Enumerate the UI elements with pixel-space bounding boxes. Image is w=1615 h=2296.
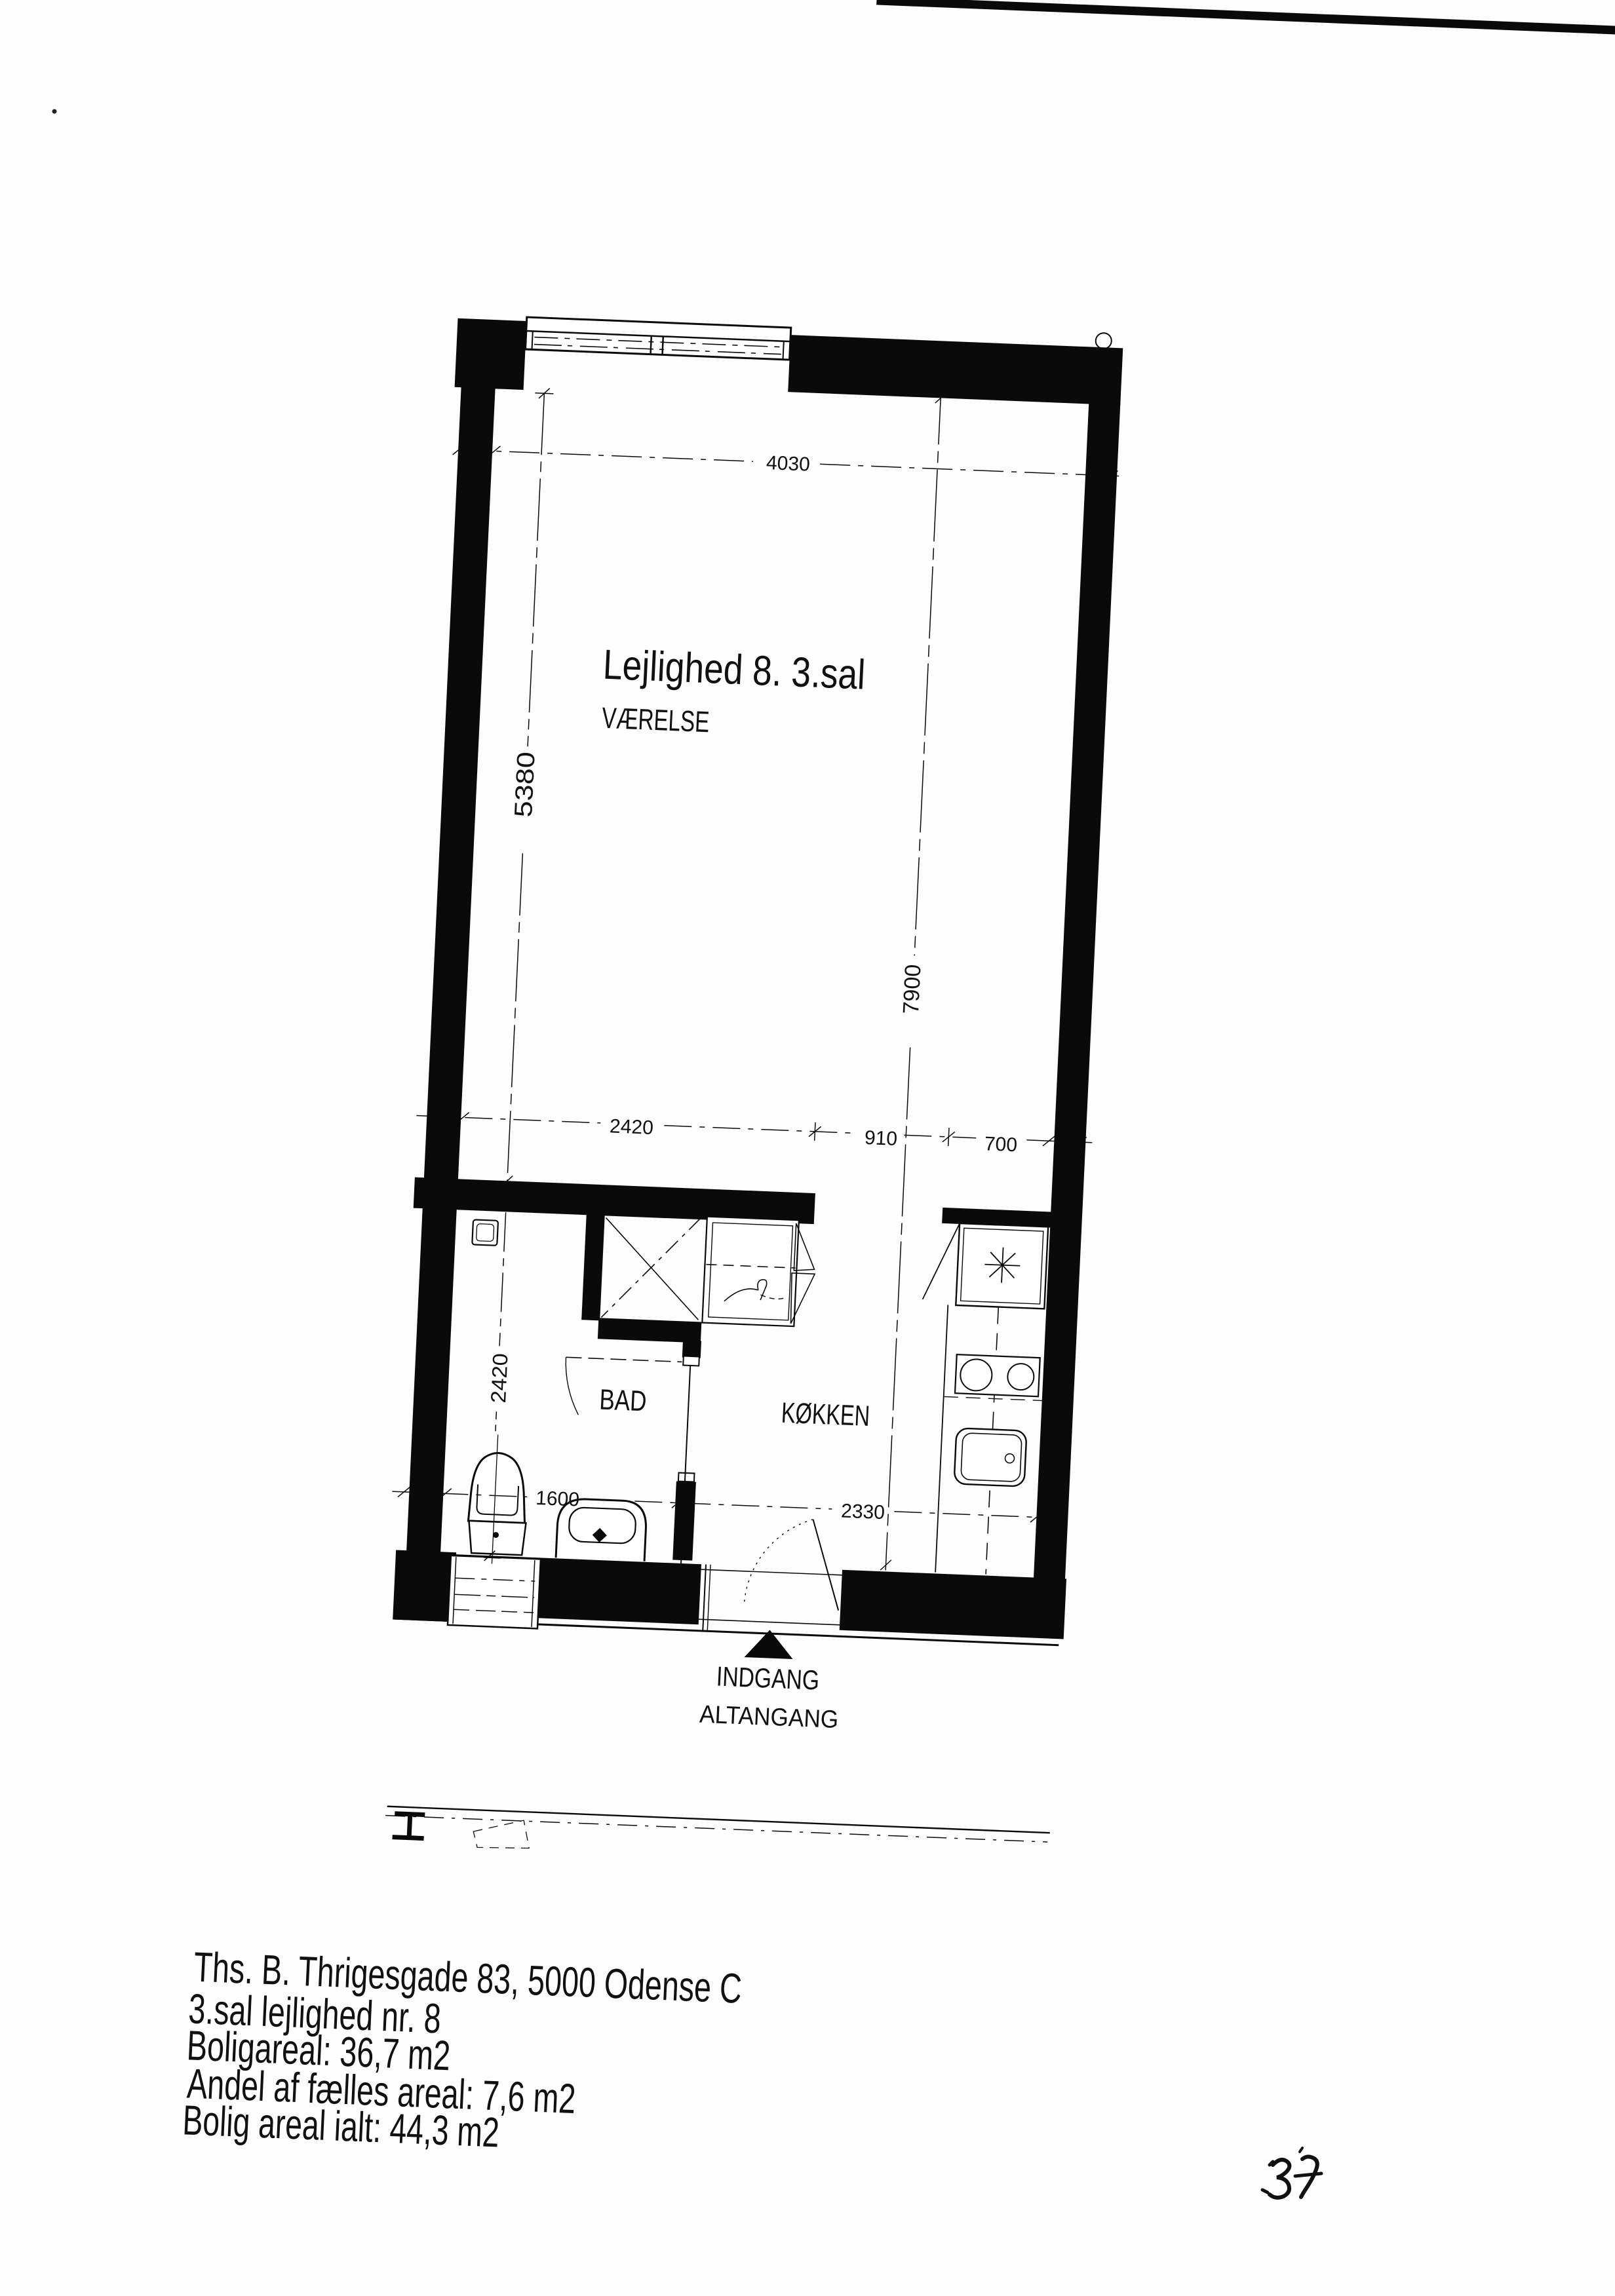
svg-text:910: 910 — [864, 1127, 898, 1150]
svg-text:7900: 7900 — [899, 964, 926, 1014]
svg-text:700: 700 — [984, 1133, 1018, 1156]
svg-text:2330: 2330 — [840, 1501, 885, 1524]
svg-text:2420: 2420 — [486, 1353, 513, 1404]
svg-text:ALTANGANG: ALTANGANG — [699, 1701, 839, 1734]
svg-text:2420: 2420 — [609, 1115, 653, 1139]
svg-text:INDGANG: INDGANG — [716, 1660, 820, 1695]
svg-text:VÆRELSE: VÆRELSE — [601, 701, 710, 739]
svg-text:BAD: BAD — [598, 1384, 647, 1418]
svg-text:5380: 5380 — [510, 751, 541, 818]
svg-text:1600: 1600 — [535, 1487, 579, 1511]
svg-text:KØKKEN: KØKKEN — [781, 1397, 870, 1432]
svg-text:4030: 4030 — [766, 452, 810, 476]
